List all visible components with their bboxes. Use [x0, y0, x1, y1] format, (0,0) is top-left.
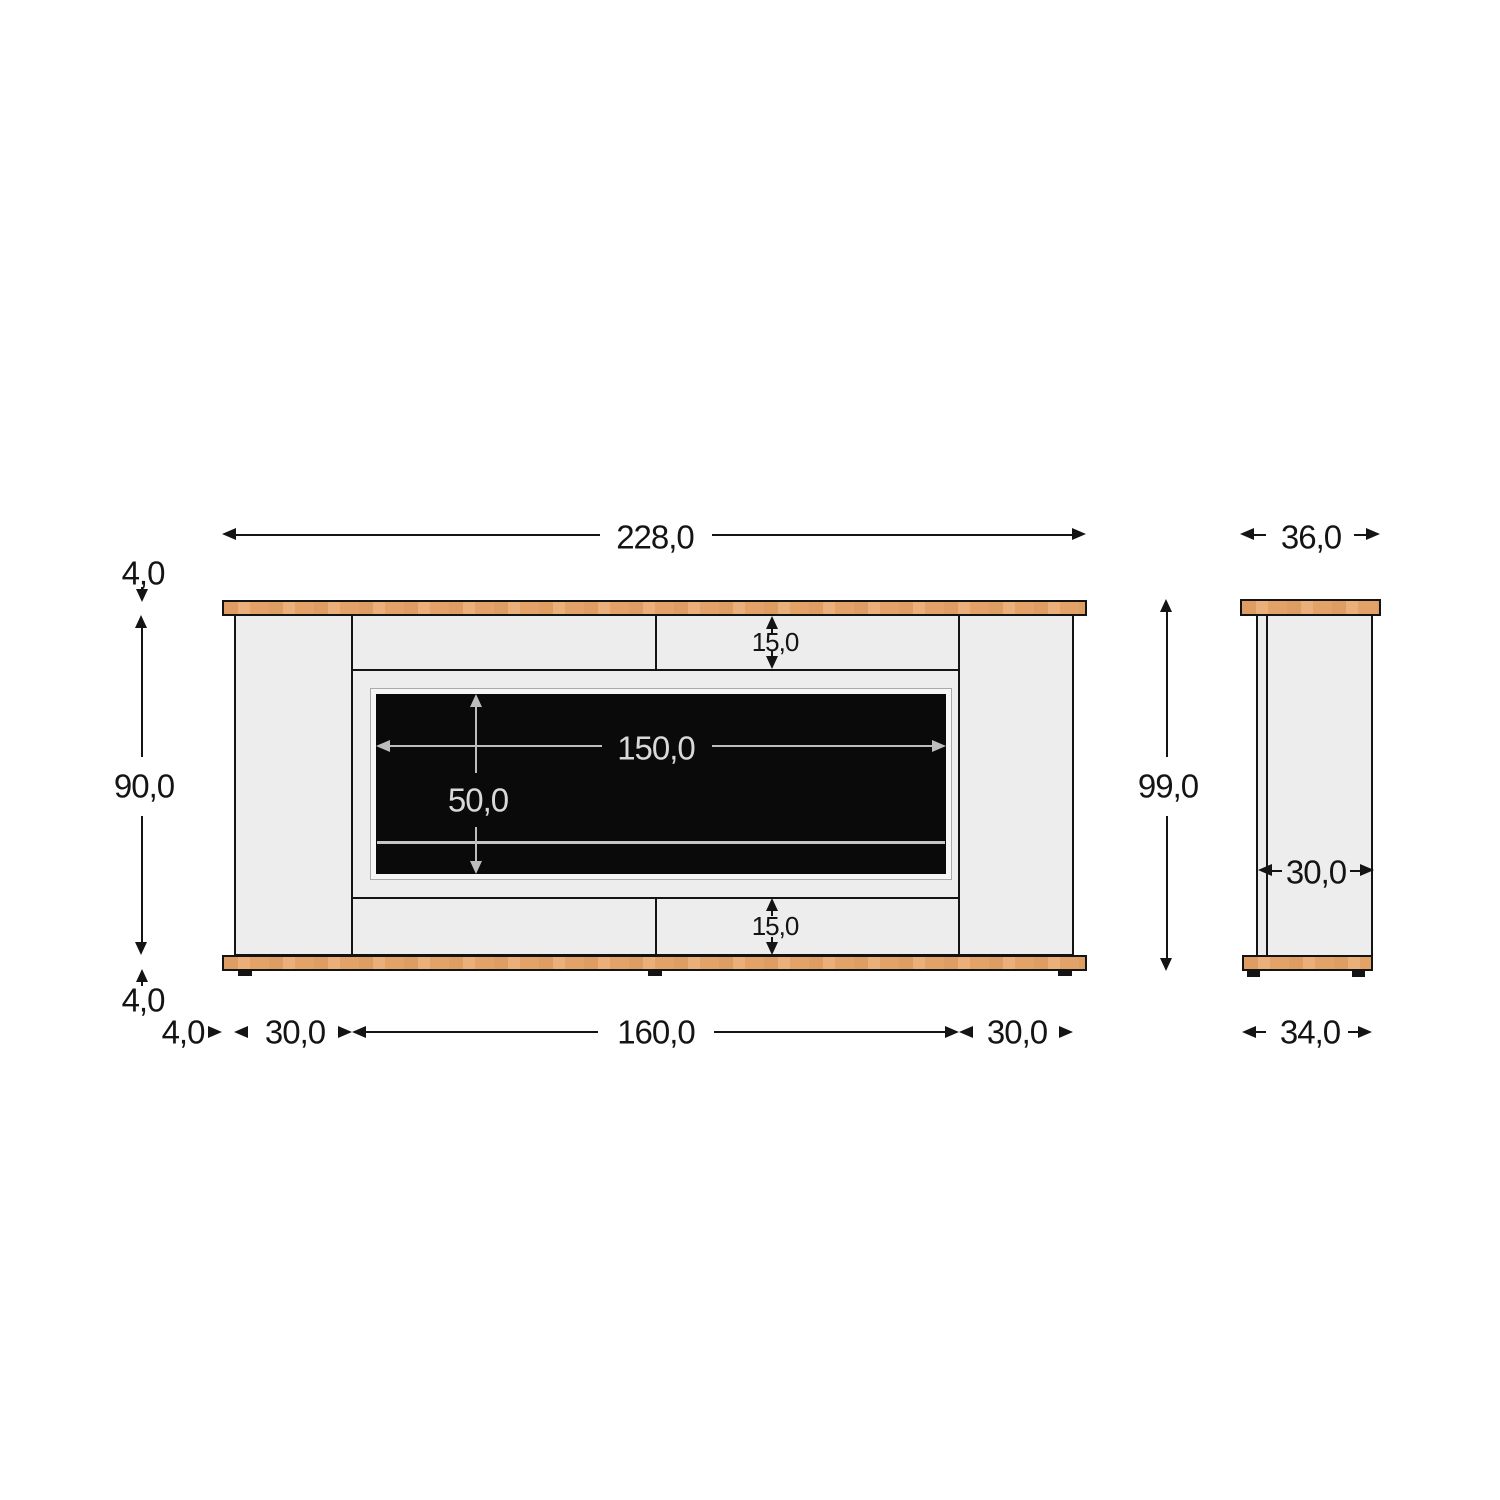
dim-arrow: [136, 589, 148, 602]
dim-arrow: [766, 656, 778, 669]
dim-arrow: [945, 1026, 959, 1038]
dim-right-pillar-width-label: 30,0: [987, 1016, 1047, 1049]
dim-arrow: [1358, 1026, 1372, 1038]
dim-arrow: [222, 528, 236, 540]
front-top-rail-line: [352, 669, 959, 671]
dim-arrow: [1160, 958, 1172, 971]
dim-line: [475, 707, 477, 773]
dim-side-overall-height-label: 99,0: [1138, 770, 1198, 803]
dim-arrow: [135, 615, 147, 628]
dim-side-bottom-width-label: 34,0: [1280, 1016, 1340, 1049]
dim-opening-height-label: 50,0: [448, 784, 508, 817]
dim-arrow: [766, 898, 778, 911]
dim-arrow: [1360, 864, 1374, 876]
dim-front-overall-width-label: 228,0: [616, 521, 694, 554]
dim-arrow: [959, 1026, 973, 1038]
side-foot-back: [1352, 970, 1365, 977]
dim-left-pillar-width-label: 30,0: [265, 1016, 325, 1049]
side-foot-front: [1247, 970, 1260, 977]
dim-arrow: [338, 1026, 352, 1038]
dim-arrow: [766, 942, 778, 955]
dim-side-body-depth-label: 30,0: [1286, 856, 1346, 889]
dim-base-overhang-label: 4,0: [162, 1016, 205, 1049]
dim-stem: [1256, 1031, 1266, 1033]
front-right-pillar-line: [958, 616, 960, 954]
firebox-fuel-bed-line: [377, 841, 945, 844]
dim-stem: [1350, 870, 1360, 872]
dim-arrow: [470, 694, 482, 707]
dim-opening-width-label: 150,0: [617, 732, 695, 765]
dim-arrow: [376, 740, 390, 752]
dim-arrow: [1240, 528, 1254, 540]
dim-top-rail-height-label: 15,0: [752, 629, 799, 655]
dim-arrow: [234, 1026, 248, 1038]
dim-line: [236, 534, 600, 536]
dim-side-top-width-label: 36,0: [1281, 521, 1341, 554]
dim-stem: [1254, 534, 1266, 536]
dim-top-panel-thickness-label: 4,0: [122, 557, 165, 590]
dim-stem: [1354, 534, 1366, 536]
front-foot-left: [238, 969, 252, 976]
front-bottom-rail-divider-line: [655, 899, 657, 955]
front-left-pillar-line: [351, 616, 353, 954]
front-top-wood-strip: [222, 600, 1087, 616]
dim-line: [714, 1031, 945, 1033]
side-back-panel-line: [1266, 616, 1268, 955]
side-top-wood-strip: [1240, 599, 1381, 616]
dim-bottom-panel-thickness-label: 4,0: [122, 984, 165, 1017]
dim-line: [712, 534, 1072, 536]
dim-center-width-label: 160,0: [617, 1016, 695, 1049]
dim-bottom-rail-height-label: 15,0: [752, 913, 799, 939]
dim-line: [390, 745, 602, 747]
dim-arrow: [1242, 1026, 1256, 1038]
dim-line: [1166, 612, 1168, 757]
dim-line: [141, 816, 143, 942]
dim-arrow: [208, 1026, 222, 1038]
dim-arrow: [1258, 864, 1272, 876]
dim-arrow: [1059, 1026, 1073, 1038]
dim-line: [712, 745, 932, 747]
dim-arrow: [135, 942, 147, 955]
side-body-panel: [1256, 614, 1373, 957]
dim-arrow: [1160, 599, 1172, 612]
dim-line: [141, 628, 143, 757]
dim-line: [475, 827, 477, 861]
front-top-rail-divider-line: [655, 616, 657, 669]
dim-arrow: [932, 740, 946, 752]
dim-line: [1166, 816, 1168, 958]
dim-arrow: [1072, 528, 1086, 540]
side-bottom-wood-strip: [1242, 955, 1373, 971]
dim-stem: [1272, 870, 1282, 872]
dim-arrow: [470, 861, 482, 874]
dim-line: [366, 1031, 598, 1033]
dim-arrow: [136, 969, 148, 982]
dim-arrow: [352, 1026, 366, 1038]
dim-stem: [1348, 1031, 1358, 1033]
front-foot-center: [648, 969, 662, 976]
dim-arrow: [1366, 528, 1380, 540]
technical-drawing: 228,0 4,0 90,0 4,0 15,0 15,0 150,0 50,0 …: [0, 0, 1500, 1500]
front-foot-right: [1058, 969, 1072, 976]
dim-body-height-label: 90,0: [114, 770, 174, 803]
